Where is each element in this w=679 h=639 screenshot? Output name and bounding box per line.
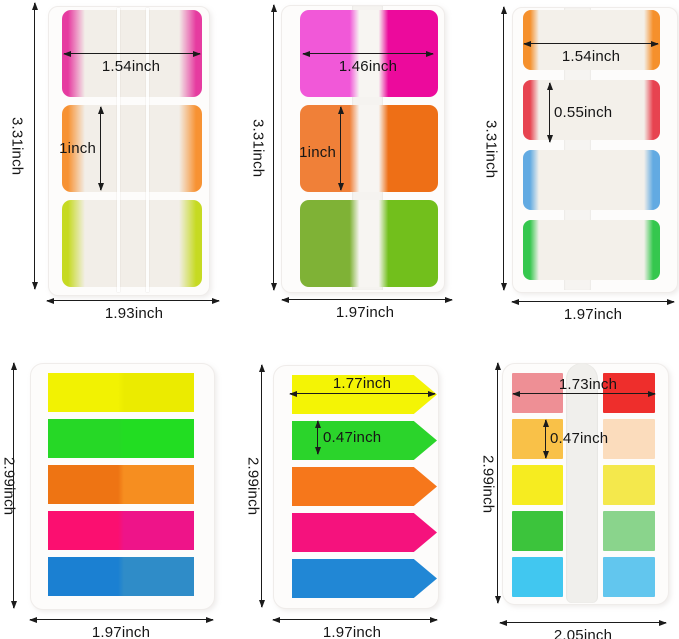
tab-height-dim-arrow (545, 420, 546, 458)
tab-flag (512, 465, 563, 505)
overall-width-dim-arrow (500, 622, 666, 623)
tab-grid (512, 373, 655, 597)
tab-flag (603, 465, 655, 505)
tab-width-label: 1.73inch (559, 377, 617, 394)
tab-flag (512, 557, 563, 597)
overall-height-dim-arrow (497, 363, 498, 603)
pack-panel-small-tabs: 1.73inch 0.47inch 2.99inch 2.05inch (0, 0, 679, 639)
tab-flag (603, 511, 655, 551)
overall-height-label: 2.99inch (479, 455, 496, 513)
overall-width-label: 2.05inch (554, 628, 612, 639)
tab-height-label: 0.47inch (550, 431, 608, 448)
tab-flag (512, 511, 563, 551)
tab-flag (603, 557, 655, 597)
tab-flag (603, 419, 655, 459)
product-dimension-image: 1.54inch 1inch 3.31inch 1.93inch 1.46inc… (0, 0, 679, 639)
